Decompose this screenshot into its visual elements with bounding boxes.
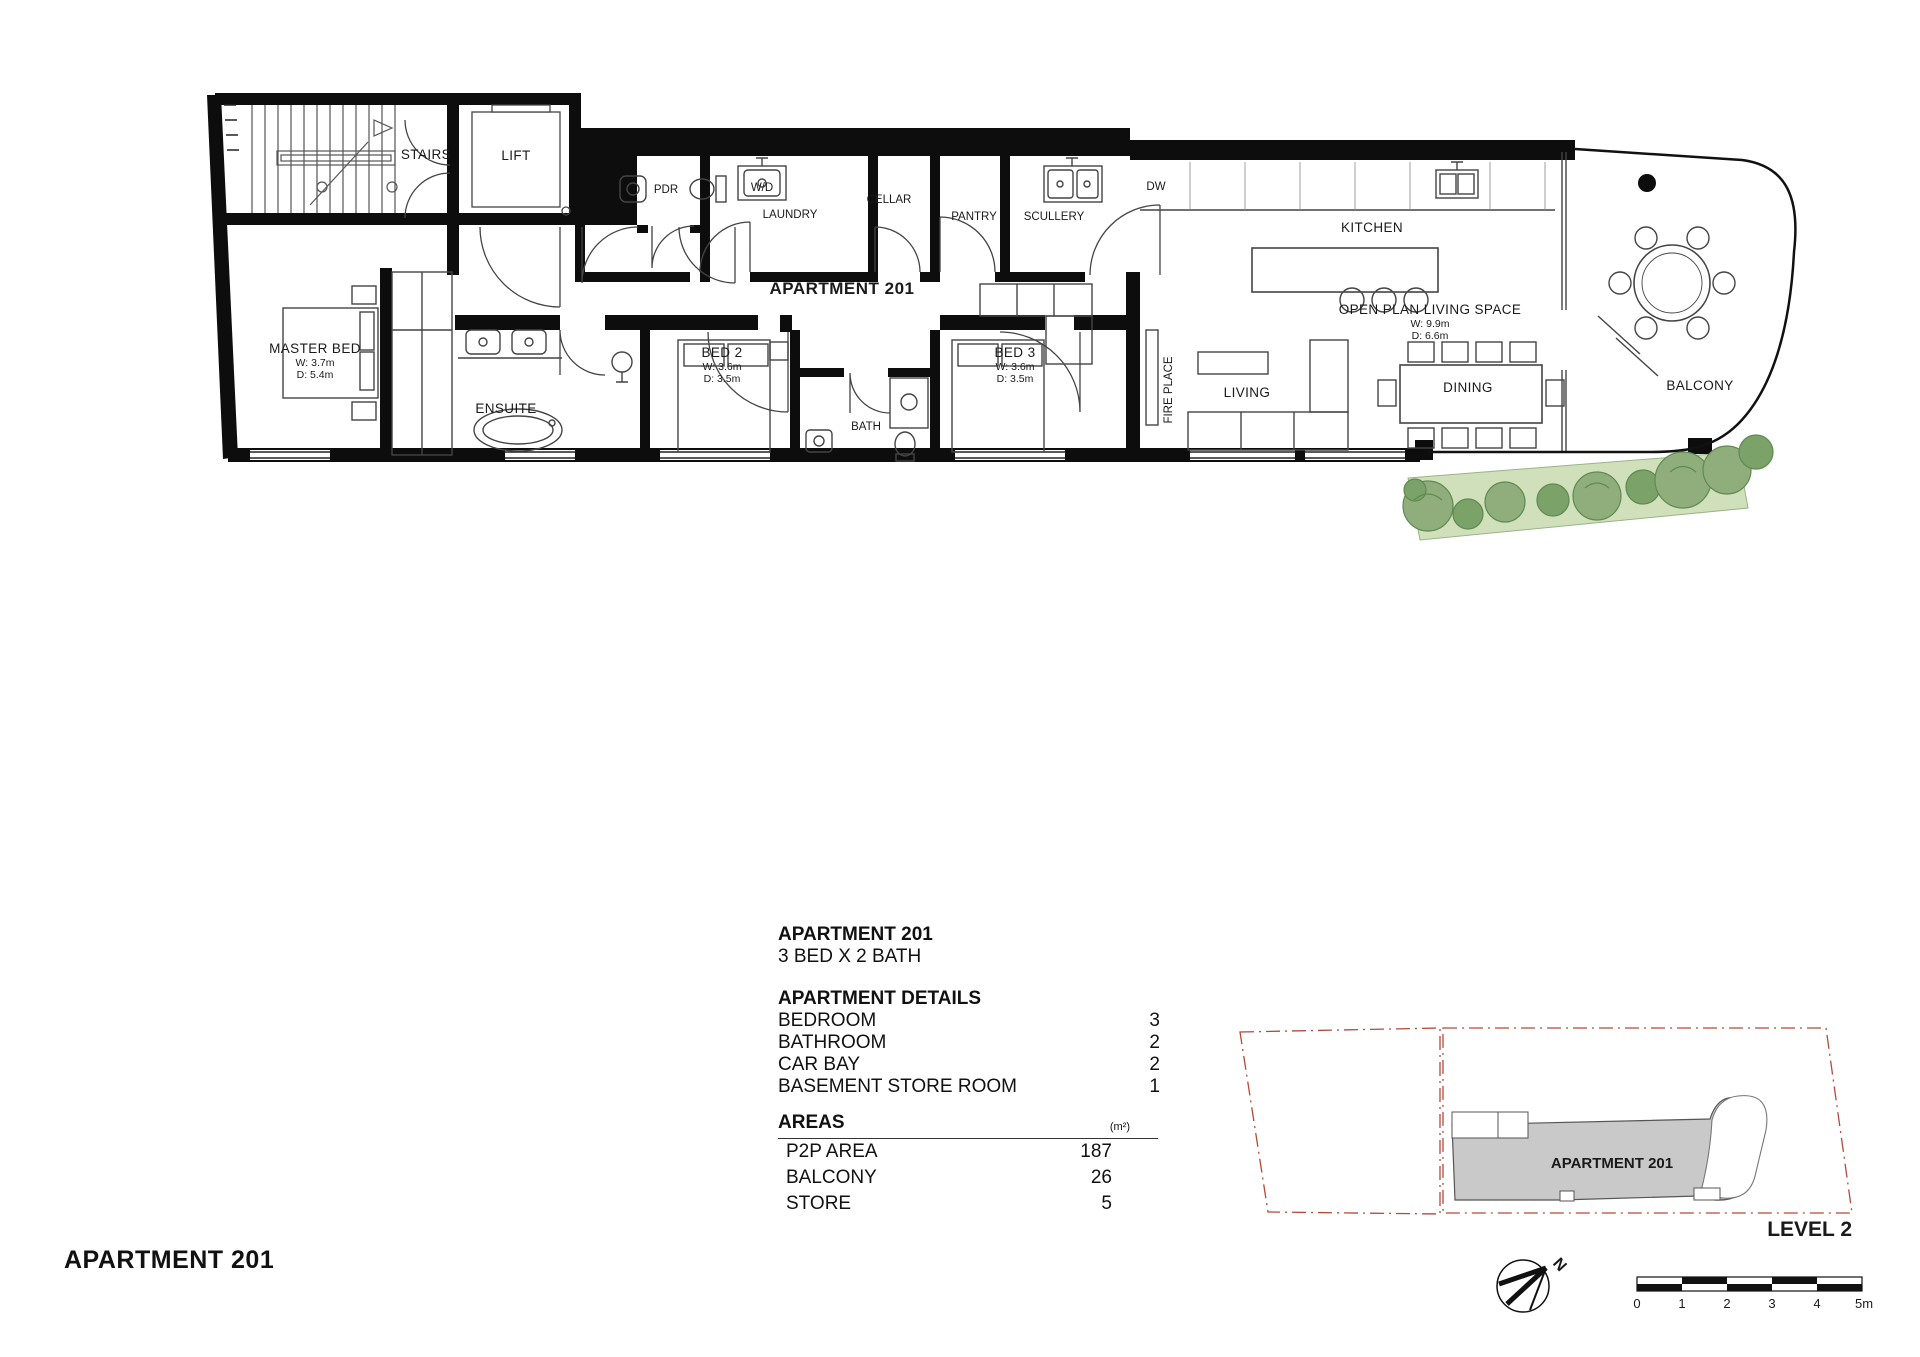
dw-label: DW	[1146, 181, 1165, 193]
master-bed-label: MASTER BED	[269, 341, 361, 356]
wd-label: W/D	[751, 182, 773, 194]
details-heading: APARTMENT DETAILS	[778, 988, 1160, 1010]
area-value: 5	[1101, 1193, 1112, 1215]
area-value: 187	[1080, 1141, 1112, 1163]
details-title: APARTMENT 201	[778, 924, 1160, 946]
detail-label: BASEMENT STORE ROOM	[778, 1076, 1017, 1098]
areas-row: BALCONY 26	[778, 1165, 1160, 1191]
areas-row: STORE 5	[778, 1191, 1160, 1217]
areas-row: P2P AREA 187	[778, 1139, 1160, 1165]
detail-value: 1	[1149, 1076, 1160, 1098]
detail-value: 2	[1149, 1032, 1160, 1054]
areas-heading: AREAS	[778, 1112, 845, 1133]
detail-value: 3	[1149, 1010, 1160, 1032]
pantry-label: PANTRY	[951, 211, 997, 223]
apartment-plan-label: APARTMENT 201	[769, 279, 914, 298]
scale-tick-0: 0	[1633, 1296, 1640, 1311]
kitchen-label: KITCHEN	[1341, 220, 1403, 235]
details-row: BASEMENT STORE ROOM 1	[778, 1076, 1160, 1098]
area-label: P2P AREA	[786, 1141, 878, 1163]
floor-plan-sheet: STAIRS LIFT PDR W/D LAUNDRY CELLAR PANTR…	[0, 0, 1920, 1357]
bed3-width: W: 3.6m	[996, 361, 1035, 373]
open-plan-width: W: 9.9m	[1411, 318, 1450, 330]
scale-tick-2: 2	[1723, 1296, 1730, 1311]
north-letter: N	[1549, 1255, 1569, 1275]
stairs-label: STAIRS	[401, 147, 451, 162]
apartment-details-panel: APARTMENT 201 3 BED X 2 BATH APARTMENT D…	[778, 924, 1160, 1217]
area-value: 26	[1091, 1167, 1112, 1189]
ensuite-label: ENSUITE	[475, 401, 536, 416]
balcony-label: BALCONY	[1666, 378, 1733, 393]
scullery-label: SCULLERY	[1024, 211, 1085, 223]
scale-tick-3: 3	[1768, 1296, 1775, 1311]
living-label: LIVING	[1224, 385, 1271, 400]
master-bed-width: W: 3.7m	[296, 357, 335, 369]
lift-label: LIFT	[501, 148, 530, 163]
details-row: BATHROOM 2	[778, 1032, 1160, 1054]
areas-heading-row: AREAS (m²)	[778, 1112, 1158, 1139]
bath-label: BATH	[851, 421, 881, 433]
open-plan-depth: D: 6.6m	[1412, 330, 1449, 342]
dining-label: DINING	[1443, 380, 1493, 395]
stair-direction-arrow	[374, 120, 392, 136]
balcony-edge	[1428, 149, 1795, 452]
level-label: LEVEL 2	[1767, 1218, 1852, 1241]
scale-tick-4: 4	[1813, 1296, 1820, 1311]
scale-bar: 0 1 2 3 4 5m	[1633, 1277, 1873, 1311]
key-plan: APARTMENT 201 LEVEL 2	[1240, 1028, 1852, 1241]
laundry-label: LAUNDRY	[763, 209, 818, 221]
detail-label: BATHROOM	[778, 1032, 886, 1054]
bed3-depth: D: 3.5m	[997, 373, 1034, 385]
scale-tick-5: 5m	[1855, 1296, 1873, 1311]
fireplace-label: FIRE PLACE	[1163, 356, 1175, 423]
detail-label: CAR BAY	[778, 1054, 860, 1076]
bed2-label: BED 2	[701, 345, 742, 360]
bed2-depth: D: 3.5m	[704, 373, 741, 385]
scale-tick-1: 1	[1678, 1296, 1685, 1311]
detail-value: 2	[1149, 1054, 1160, 1076]
areas-unit: (m²)	[1110, 1116, 1130, 1138]
pdr-label: PDR	[654, 184, 678, 196]
door-swings	[405, 120, 1160, 413]
area-label: STORE	[786, 1193, 851, 1215]
sheet-title: APARTMENT 201	[64, 1246, 274, 1275]
column-dot	[1638, 174, 1656, 192]
details-row: BEDROOM 3	[778, 1010, 1160, 1032]
north-arrow: N	[1497, 1255, 1570, 1312]
key-plan-apartment-label: APARTMENT 201	[1551, 1155, 1673, 1172]
area-label: BALCONY	[786, 1167, 877, 1189]
open-plan-label: OPEN PLAN LIVING SPACE	[1339, 302, 1522, 317]
details-row: CAR BAY 2	[778, 1054, 1160, 1076]
cellar-label: CELLAR	[867, 194, 912, 206]
master-bed-depth: D: 5.4m	[297, 369, 334, 381]
detail-label: BEDROOM	[778, 1010, 876, 1032]
bed2-width: W: 3.6m	[703, 361, 742, 373]
bed3-label: BED 3	[994, 345, 1035, 360]
details-subtitle: 3 BED X 2 BATH	[778, 946, 1160, 968]
